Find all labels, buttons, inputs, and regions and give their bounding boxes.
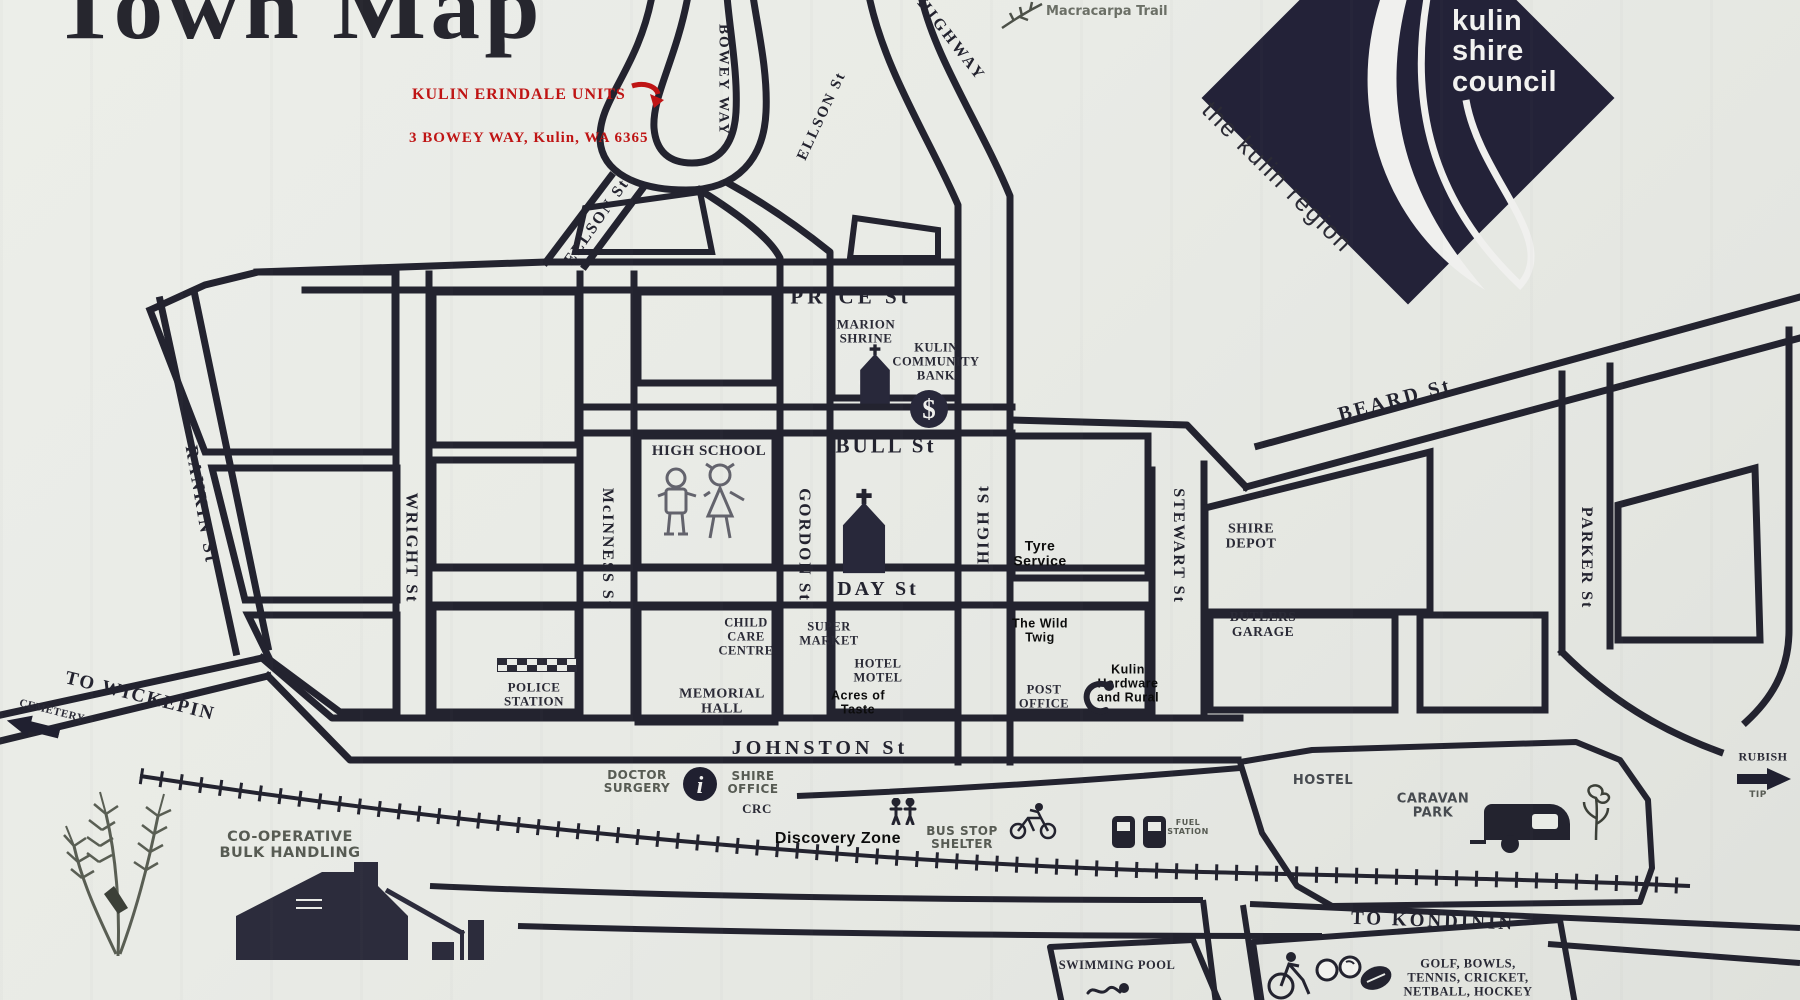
- checker-police-icon: [497, 658, 577, 672]
- the-wild-twig-label: The WildTwig: [1012, 617, 1068, 645]
- caravan-icon: [1470, 796, 1578, 854]
- bus-stop-shelter-label: BUS STOPSHELTER: [926, 825, 998, 851]
- phone-icon: [1078, 678, 1116, 716]
- police-station-label: POLICESTATION: [504, 681, 564, 710]
- golf-bowls-label: GOLF, BOWLS,TENNIS, CRICKET,NETBALL, HOC…: [1403, 957, 1532, 998]
- bowey-way-label: BOWEY WAY: [715, 24, 732, 136]
- wright-st-label: WRIGHT St: [402, 493, 421, 604]
- community-bank-label: KULINCOMMUNITYBANK: [892, 341, 979, 382]
- post-office-label: POSTOFFICE: [1019, 683, 1069, 711]
- co-op-bulk-handling-label: CO-OPERATIVEBULK HANDLING: [219, 830, 360, 862]
- logo-title: kulin shire council: [1452, 6, 1557, 97]
- flower-icon: [1578, 784, 1614, 842]
- dollar-bank-icon: [908, 388, 950, 430]
- rubish-label: RUBISH: [1738, 750, 1787, 763]
- bull-st-label: BULL St: [836, 434, 937, 457]
- children-icon: [652, 462, 754, 550]
- day-st-label: DAY St: [837, 578, 919, 600]
- mcinness-st-label: McINNESS St: [598, 488, 616, 608]
- branch-icon: [1000, 0, 1044, 30]
- grain-shed-icon: [236, 860, 488, 962]
- child-care-centre-label: CHILDCARECENTRE: [718, 616, 773, 657]
- doctor-surgery-label: DOCTORSURGERY: [604, 769, 670, 795]
- caravan-park-label: CARAVANPARK: [1397, 793, 1469, 822]
- church-icon: [833, 487, 895, 575]
- hostel-label: HOSTEL: [1293, 774, 1353, 788]
- erindale-address-notice: 3 BOWEY WAY, Kulin, WA 6365: [409, 130, 648, 147]
- logo-line2: shire: [1452, 36, 1557, 66]
- hotel-motel-label: HOTELMOTEL: [853, 657, 902, 685]
- discovery-zone-label: Discovery Zone: [775, 830, 901, 848]
- swimmer-icon: [1086, 980, 1132, 1000]
- wheat-icon: [58, 786, 198, 958]
- stewart-st-label: STEWART St: [1169, 488, 1187, 604]
- red-arrow-icon: [630, 80, 666, 110]
- page-title: Town Map: [52, 0, 544, 60]
- high-school-label: HIGH SCHOOL: [652, 443, 766, 460]
- marion-shrine-label: MARIONSHRINE: [837, 318, 896, 347]
- swimming-pool-label: SWIMMING POOL: [1059, 959, 1176, 973]
- rubbish-arrow-icon: [1736, 768, 1792, 790]
- logo-line3: council: [1452, 67, 1557, 97]
- tip-label: TIP: [1749, 791, 1767, 801]
- info-icon: [682, 766, 718, 802]
- gordon-st-label: GORDON St: [795, 488, 814, 602]
- memorial-hall-label: MEMORIALHALL: [679, 687, 765, 718]
- shire-office-label: SHIREOFFICE: [727, 770, 778, 796]
- logo-line1: kulin: [1452, 6, 1557, 36]
- pedestrians-icon: [888, 798, 918, 825]
- tyre-service-label: TyreService: [1013, 539, 1066, 570]
- town-map-page: $: [0, 0, 1800, 1000]
- parker-st-label: PARKER St: [1577, 507, 1595, 610]
- erindale-units-notice: KULIN ERINDALE UNITS: [412, 86, 626, 104]
- acres-of-taste-label: Acres ofTaste: [831, 689, 885, 717]
- fuel-pumps-icon: [1110, 812, 1168, 850]
- price-st-label: PRICE St: [790, 285, 911, 308]
- high-st-label: HIGH St: [975, 484, 994, 564]
- church-icon: [845, 343, 905, 405]
- johnston-st-label: JOHNSTON St: [732, 737, 908, 759]
- fuel-station-label: FUELSTATION: [1167, 819, 1209, 837]
- sports-icons: [1263, 950, 1395, 1000]
- macracarpa-trail-label: Macracarpa Trail: [1046, 4, 1168, 19]
- crc-label: CRC: [742, 802, 772, 816]
- butlers-garage-label: BUTLERSGARAGE: [1230, 610, 1297, 640]
- shire-depot-label: SHIREDEPOT: [1226, 522, 1277, 553]
- cyclist-icon: [1008, 802, 1058, 840]
- super-market-label: SUPERMARKET: [799, 620, 858, 648]
